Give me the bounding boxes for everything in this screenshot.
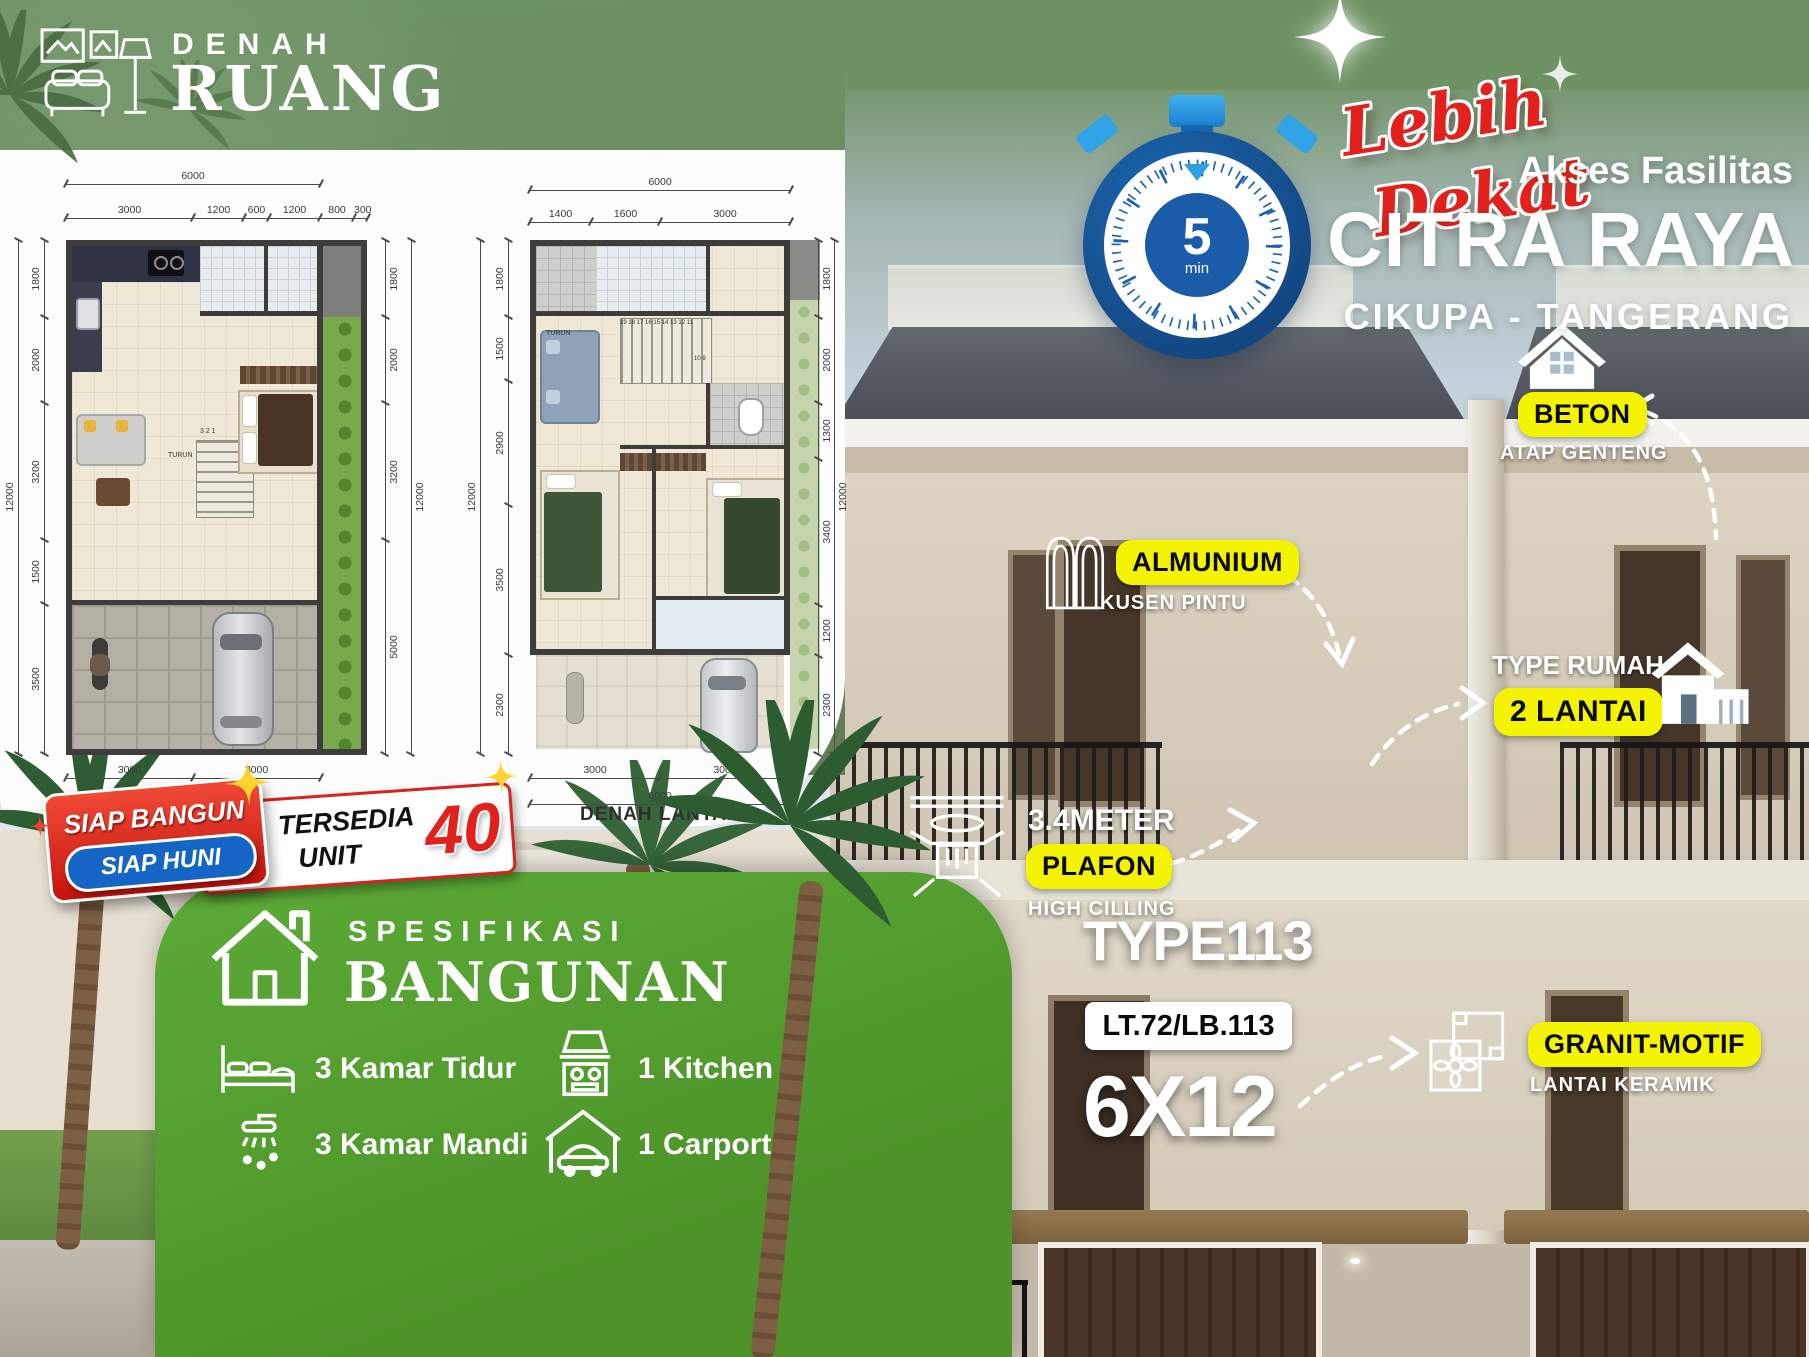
size-label: 6X12	[1083, 1058, 1276, 1157]
plan2-wall	[530, 240, 790, 246]
flyer-canvas: DENAH RUANG 6000 300012006001200800300 1…	[0, 0, 1809, 1357]
plan2-pillow	[546, 474, 576, 489]
dim-label: 1200	[193, 202, 244, 219]
plan1-motorbike-seat	[90, 654, 110, 676]
dim-label: 800	[320, 202, 354, 219]
beam	[1504, 1210, 1809, 1244]
callout-granit-pill: GRANIT-MOTIF	[1528, 1022, 1761, 1067]
dim-label: 1500	[492, 317, 509, 381]
plan2-partition	[656, 596, 784, 600]
plan1-wall	[361, 240, 367, 755]
callout-plafon-pill: PLAFON	[1026, 844, 1172, 889]
callout-beton-pill: BETON	[1518, 392, 1647, 437]
plan2-car-windshield	[708, 676, 746, 690]
sparkle-icon	[480, 756, 522, 798]
plan2-dim-right: 180020001300340012002300	[818, 240, 834, 755]
plan2-motorbike	[566, 672, 584, 724]
plan2-wall	[530, 649, 790, 655]
dim-label: 12000	[464, 240, 481, 754]
plan1-stair-label: TURUN	[168, 452, 193, 459]
plan1-partition	[200, 311, 317, 316]
ceiling-plafon-icon	[902, 790, 1012, 902]
dim-label: 1500	[28, 540, 45, 604]
plan1-sink	[76, 298, 100, 330]
plan2-partition	[536, 311, 784, 316]
plan1-partition	[264, 246, 268, 313]
plan2-stairs	[620, 318, 712, 384]
dim-label: 3200	[385, 403, 402, 540]
dim-label: 1800	[28, 240, 45, 317]
plan1-sofa-cushion	[116, 420, 128, 432]
dim-label: 3000	[66, 202, 193, 219]
tersedia-label: TERSEDIA	[277, 801, 415, 841]
plan1-dim-top-total: 6000	[66, 168, 322, 184]
unit-count: 40	[422, 787, 503, 870]
callout-lantai-title: TYPE RUMAH	[1492, 650, 1664, 681]
plan2-dim-top-total: 6000	[530, 174, 792, 190]
dim-label: 1400	[530, 206, 591, 223]
living-room-icon	[38, 22, 156, 130]
plan1-car-rear	[220, 716, 262, 728]
dim-label: 2900	[492, 381, 509, 505]
spec-item-label: 1 Carport	[638, 1128, 771, 1162]
sparkle-icon	[1285, 0, 1395, 92]
granite-tile-icon	[1424, 1008, 1520, 1104]
plan2-partition	[706, 246, 710, 313]
dim-label: 6000	[66, 168, 320, 185]
plan2-toilet	[738, 398, 764, 436]
dim-label: 2300	[492, 655, 509, 754]
plan2-balcony	[656, 600, 784, 649]
sparkle-icon	[26, 812, 53, 839]
downlight	[1350, 1258, 1360, 1264]
plan1-car-windshield	[220, 634, 262, 650]
callout-almunium-sub: KUSEN PINTU	[1100, 592, 1247, 615]
door-frame-icon	[1042, 528, 1108, 614]
spec-item-label: 3 Kamar Mandi	[315, 1128, 528, 1162]
plan1-dim-right-total: 12000	[411, 240, 427, 755]
plan2-garden	[790, 300, 820, 749]
plan1-dim-right: 1800200032005000	[385, 240, 401, 755]
siap-huni-label: SIAP HUNI	[100, 843, 222, 881]
kitchen-icon	[545, 1028, 625, 1100]
callout-granit-sub: LANTAI KERAMIK	[1530, 1074, 1715, 1097]
spec-item-label: 1 Kitchen	[638, 1052, 773, 1086]
house-outline-icon	[206, 900, 324, 1012]
plan1-stair-numbers: 3 2 1	[200, 428, 216, 435]
callout-lantai-pill: 2 LANTAI	[1494, 688, 1663, 736]
dim-label: 12000	[411, 240, 428, 754]
plan2-pillow	[712, 482, 742, 497]
plan1-pillow	[242, 395, 257, 427]
dim-label: 1300	[818, 403, 835, 459]
callout-almunium-pill: ALMUNIUM	[1116, 540, 1299, 585]
plan1-coffee-table	[96, 478, 130, 506]
dim-label: 1200	[818, 605, 835, 656]
plan1-pillow	[242, 432, 257, 464]
plan2-partition	[652, 449, 656, 649]
dim-label: 300	[354, 202, 367, 219]
spec-item-label: 3 Kamar Tidur	[315, 1052, 516, 1086]
plan2-dim-left: 18001500290035002300	[492, 240, 508, 755]
dim-label: 3400	[818, 459, 835, 605]
lt-lb-label: LT.72/LB.113	[1103, 1010, 1275, 1043]
sparkle-icon	[220, 755, 277, 812]
plan1-sofa-cushion	[84, 420, 96, 432]
balcony-railing	[1560, 742, 1809, 866]
garage-door	[1530, 1242, 1809, 1357]
dim-label: 600	[244, 202, 269, 219]
stopwatch-face: 5 min	[1104, 152, 1290, 338]
callout-beton-sub: ATAP GENTENG	[1500, 442, 1668, 465]
dim-label: 3000	[660, 206, 790, 223]
stopwatch-icon: 5 min	[1083, 131, 1311, 359]
plan2-dim-right-total: 12000	[834, 240, 850, 755]
dim-label: 2000	[818, 317, 835, 403]
promo-location: CIKUPA - TANGERANG	[1344, 296, 1793, 338]
plan2-sofa-cushion	[546, 340, 560, 354]
plan2-bath-top	[596, 246, 706, 313]
plan1-bed-blanket	[258, 394, 313, 466]
dim-label: 1800	[385, 240, 402, 317]
plan1-carport	[72, 605, 317, 749]
dim-label: 1200	[269, 202, 320, 219]
plan1-dim-top: 300012006001200800300	[66, 202, 369, 218]
lt-lb-pill: LT.72/LB.113	[1085, 1002, 1292, 1050]
plan2-wardrobe	[620, 453, 706, 471]
availability-badge: TERSEDIA UNIT 40 SIAP BANGUN SIAP HUNI	[43, 758, 529, 918]
promo-akses: Akses Fasilitas	[1518, 150, 1793, 193]
plan2-dim-top: 140016003000	[530, 206, 792, 222]
plan2-sofa-cushion	[546, 390, 560, 404]
spec-title-line1: SPESIFIKASI	[348, 916, 628, 949]
plan2-stair-numbers: 19 18 17 16 15 14 13 12 11	[620, 320, 693, 326]
plan1-stove-burner	[154, 256, 168, 270]
dim-label: 1600	[591, 206, 660, 223]
stopwatch-crown	[1169, 95, 1225, 127]
plan2-bed-blanket	[724, 498, 780, 594]
plan2-wall	[530, 240, 536, 655]
carport-icon	[540, 1104, 626, 1182]
plan2-stair-numbers-side: 10 9	[694, 356, 706, 362]
plan2-partition	[706, 383, 710, 449]
dim-label: 12000	[2, 240, 19, 754]
dim-label: 12000	[834, 240, 851, 754]
plan1-wall	[66, 240, 72, 755]
type-label: TYPE113	[1083, 908, 1313, 973]
plan1-wardrobe	[240, 366, 317, 384]
stopwatch-body: 5 min	[1083, 131, 1311, 359]
dim-label: 3500	[492, 505, 509, 655]
plan2-laundry	[536, 246, 596, 313]
callout-plafon-title: 3.4METER	[1028, 804, 1175, 838]
sparkle-icon	[1538, 52, 1582, 96]
siap-huni-pill: SIAP HUNI	[63, 831, 258, 894]
dim-label: 2000	[385, 317, 402, 403]
plan1-dim-left-total: 12000	[2, 240, 18, 755]
header-title-line2: RUANG	[170, 58, 446, 120]
dim-label: 1800	[818, 240, 835, 317]
plan2-stair-label: TURUN	[546, 330, 571, 337]
dim-label: 2000	[28, 317, 45, 403]
bed-icon	[216, 1040, 300, 1098]
plan2-sideyard	[790, 240, 820, 300]
dim-label: 3500	[28, 604, 45, 754]
beam	[975, 1210, 1468, 1244]
dim-label: 6000	[530, 174, 790, 191]
spec-title-line2: BANGUNAN	[344, 950, 731, 1014]
dim-label: 3200	[28, 403, 45, 540]
two-storey-house-icon	[1648, 640, 1752, 728]
plan1-patio	[200, 246, 317, 313]
plan1-stove-burner	[170, 256, 184, 270]
plan2-wall	[784, 240, 790, 655]
plan1-wall	[317, 240, 323, 755]
plan2-dim-left-total: 12000	[464, 240, 480, 755]
plan1-partition	[72, 600, 317, 605]
plan2-bed-blanket	[544, 492, 602, 592]
plan2-partition	[620, 445, 784, 449]
plan1-dim-left: 18002000320015003500	[28, 240, 44, 755]
dim-label: 1800	[492, 240, 509, 317]
dim-label: 5000	[385, 540, 402, 754]
garage-door	[1038, 1242, 1322, 1357]
shower-icon	[228, 1110, 290, 1186]
promo-brand: CITRA RAYA	[1327, 196, 1795, 285]
unit-label: UNIT	[297, 839, 362, 874]
